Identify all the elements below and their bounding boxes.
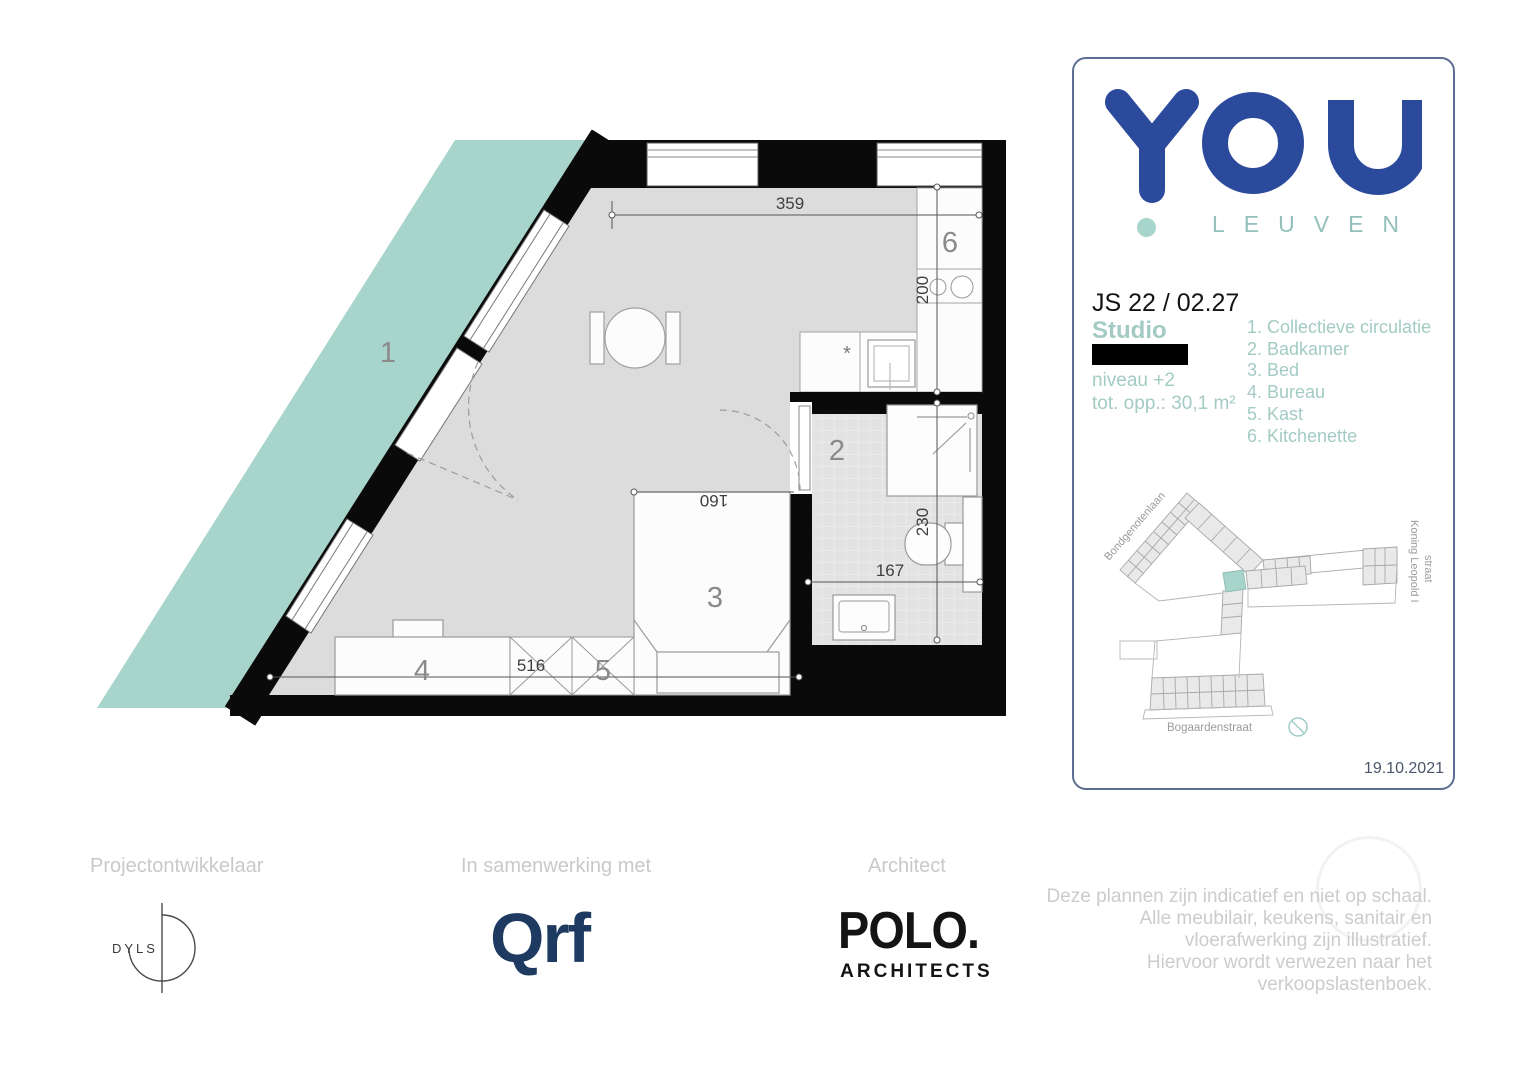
you-logo xyxy=(1102,88,1422,208)
unit-code: JS 22 / 02.27 xyxy=(1092,289,1239,318)
dyls-logo-text: DYLS xyxy=(112,941,158,956)
dim-bottom: 516 xyxy=(517,656,545,675)
partner-label: In samenwerking met xyxy=(461,855,651,878)
legend-item: 1. Collectieve circulatie xyxy=(1247,317,1431,339)
room-label-circulation: 1 xyxy=(380,337,396,369)
legend-item: 5. Kast xyxy=(1247,404,1431,426)
floor-plan: * xyxy=(90,130,1050,770)
room-label-bed: 3 xyxy=(707,582,723,614)
dim-bath-v: 230 xyxy=(913,508,932,536)
legend-item: 6. Kitchenette xyxy=(1247,426,1431,448)
logo-dot-icon xyxy=(1137,218,1156,237)
qrf-logo: Qrf xyxy=(490,898,589,978)
street-koning-leopold-1: Koning Leopold I xyxy=(1408,520,1420,603)
unit-type: Studio xyxy=(1092,317,1167,345)
legend: 1. Collectieve circulatie 2. Badkamer 3.… xyxy=(1247,317,1431,447)
legend-item: 2. Badkamer xyxy=(1247,339,1431,361)
unit-level: niveau +2 xyxy=(1092,370,1175,392)
site-map: Bondgenotenlaan Koning Leopold I straat … xyxy=(1095,465,1445,745)
developer-label: Projectontwikkelaar xyxy=(90,855,263,878)
sink xyxy=(833,595,895,640)
dining-table xyxy=(590,308,680,368)
unit-area: tot. opp.: 30,1 m² xyxy=(1092,393,1236,415)
compass-icon xyxy=(1289,718,1307,736)
dyls-logo: DYLS xyxy=(100,895,230,1000)
page: * xyxy=(0,0,1528,1080)
street-koning-leopold-2: straat xyxy=(1422,555,1434,583)
room-label-bureau: 4 xyxy=(414,655,430,687)
room-label-kitchenette: 6 xyxy=(942,227,958,259)
disclaimer-line: Alle meubilair, keukens, sanitair en xyxy=(992,908,1432,930)
street-bogaardenstraat: Bogaardenstraat xyxy=(1167,722,1253,734)
logo-subtext: LEUVEN xyxy=(1212,211,1418,238)
architect-label: Architect xyxy=(868,855,946,878)
disclaimer-line: vloerafwerking zijn illustratief. xyxy=(992,930,1432,952)
oven-icon xyxy=(868,340,915,390)
dim-bed: 160 xyxy=(700,491,728,510)
wall-color-swatch xyxy=(1092,344,1188,365)
disclaimer-line: Deze plannen zijn indicatief en niet op … xyxy=(992,886,1432,908)
dim-top: 359 xyxy=(776,194,804,213)
dim-bath-h: 167 xyxy=(876,561,904,580)
polo-logo-line1: POLO. xyxy=(838,905,979,957)
legend-item: 3. Bed xyxy=(1247,360,1431,382)
room-label-kast: 5 xyxy=(595,655,611,687)
polo-logo-line2: ARCHITECTS xyxy=(838,961,995,983)
plan-date: 19.10.2021 xyxy=(1320,760,1444,778)
legend-item: 4. Bureau xyxy=(1247,382,1431,404)
polo-logo: POLO. ARCHITECTS xyxy=(838,905,995,983)
unit-highlight xyxy=(1223,570,1246,592)
disclaimer-line: Hiervoor wordt verwezen naar het xyxy=(992,952,1432,974)
dim-kitchen: 200 xyxy=(913,276,932,304)
disclaimer: Deze plannen zijn indicatief en niet op … xyxy=(992,886,1432,996)
room-label-bathroom: 2 xyxy=(829,435,845,467)
shower xyxy=(887,405,977,496)
disclaimer-line: verkoopslastenboek. xyxy=(992,974,1432,996)
kitchen-marker: * xyxy=(843,343,851,365)
